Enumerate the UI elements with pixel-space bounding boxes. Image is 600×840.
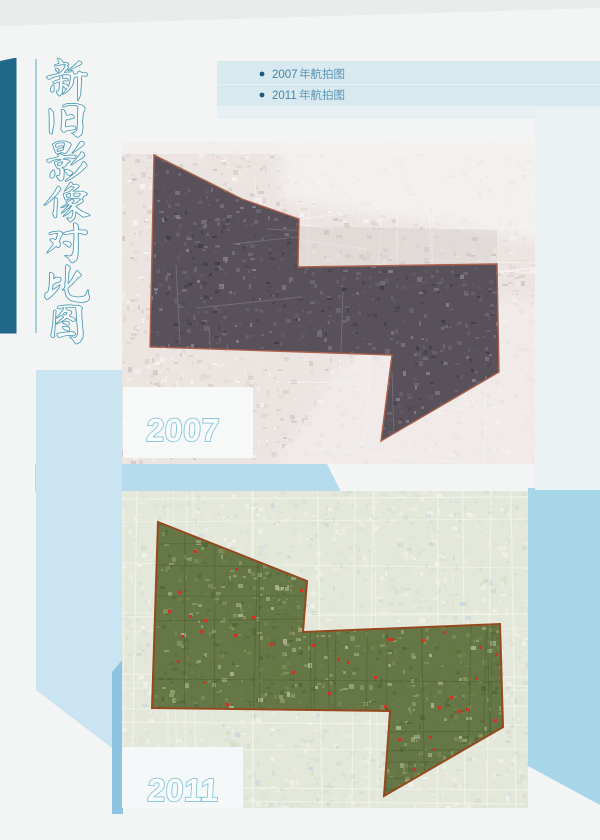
svg-text:2011: 2011 [147, 772, 220, 808]
svg-text:2011: 2011 [272, 90, 297, 102]
svg-text:2007: 2007 [146, 412, 221, 448]
svg-text:2007: 2007 [272, 69, 298, 81]
